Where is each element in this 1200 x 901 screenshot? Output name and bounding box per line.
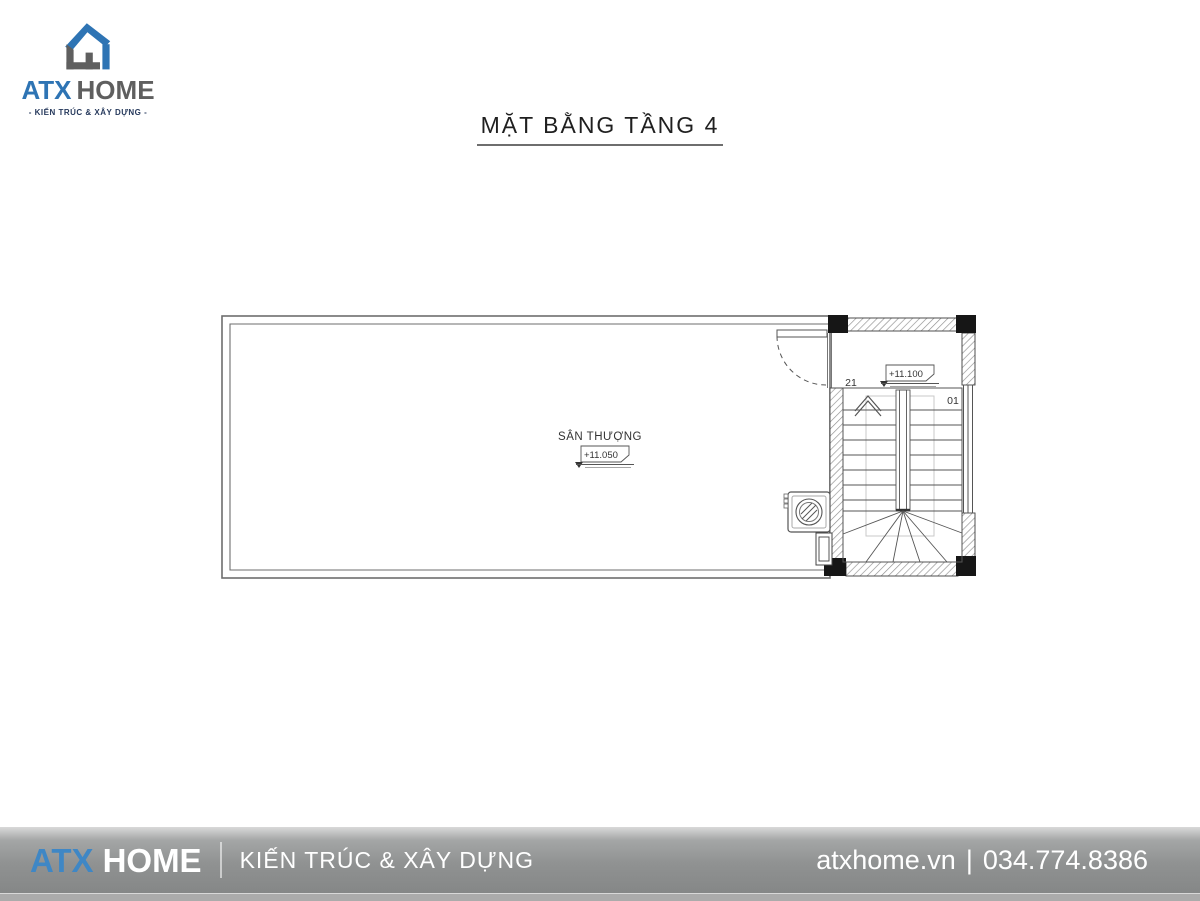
service-shaft	[816, 533, 832, 565]
column-bottom-right	[956, 556, 976, 576]
floor-plan-drawing: SÂN THƯỢNG +11.050 +11.100 21 01	[200, 300, 1000, 600]
stair-right-pier-bottom	[962, 513, 975, 558]
logo-brand-secondary: HOME	[77, 75, 155, 105]
landing-level-value: +11.100	[889, 369, 923, 380]
footer-tagline: KIẾN TRÚC & XÂY DỰNG	[240, 847, 534, 874]
page-title: MẶT BẰNG TẦNG 4	[477, 112, 724, 146]
stair-step-number-end: 01	[947, 395, 959, 407]
logo-right-wall-shape	[102, 44, 109, 69]
footer-website: atxhome.vn	[816, 845, 956, 875]
door	[777, 330, 827, 385]
footer-bar: ATXHOME KIẾN TRÚC & XÂY DỰNG atxhome.vn|…	[0, 827, 1200, 893]
footer-contact: atxhome.vn|034.774.8386	[816, 845, 1148, 876]
stair-divider-wall	[896, 390, 910, 510]
footer-brand-block: ATXHOME KIẾN TRÚC & XÂY DỰNG	[30, 842, 534, 878]
logo-mid-wall-shape	[86, 53, 93, 70]
page-title-wrap: MẶT BẰNG TẦNG 4	[0, 112, 1200, 146]
footer-contact-separator: |	[956, 845, 983, 875]
landing-level-marker: +11.100	[880, 365, 939, 387]
stair-bottom-wall	[846, 562, 958, 576]
logo-bottom-wall-shape	[66, 62, 100, 69]
footer-phone: 034.774.8386	[983, 845, 1148, 875]
stair-right-pier-top	[962, 333, 975, 385]
footer: ATXHOME KIẾN TRÚC & XÂY DỰNG atxhome.vn|…	[0, 827, 1200, 900]
footer-brand-secondary: HOME	[103, 842, 202, 879]
stair-direction-arrow-icon	[855, 396, 881, 416]
room-label: SÂN THƯỢNG	[558, 430, 642, 443]
floor-plan: SÂN THƯỢNG +11.050 +11.100 21 01	[200, 300, 1000, 600]
house-logo-icon	[58, 12, 118, 74]
washing-machine	[784, 492, 830, 532]
footer-brand: ATXHOME	[30, 844, 202, 877]
door-leaf	[777, 330, 827, 337]
logo-brand: ATXHOME	[18, 77, 158, 103]
column-top-left	[828, 315, 848, 333]
terrace-parapet-walls	[222, 316, 830, 578]
footer-divider-line	[220, 842, 222, 878]
room-level-value: +11.050	[584, 450, 618, 461]
door-swing-arc	[777, 336, 826, 385]
level-marker-triangle-icon	[575, 462, 583, 468]
stair-window	[962, 385, 975, 513]
level-marker-triangle-icon	[880, 381, 888, 387]
column-top-right	[956, 315, 976, 333]
stair-step-number-start: 21	[845, 377, 857, 389]
stair-top-wall	[847, 318, 958, 331]
logo-brand-primary: ATX	[21, 75, 71, 105]
footer-brand-primary: ATX	[30, 842, 94, 879]
logo: ATXHOME - KIẾN TRÚC & XÂY DỰNG -	[18, 12, 158, 117]
room-level-marker: +11.050	[575, 446, 634, 468]
